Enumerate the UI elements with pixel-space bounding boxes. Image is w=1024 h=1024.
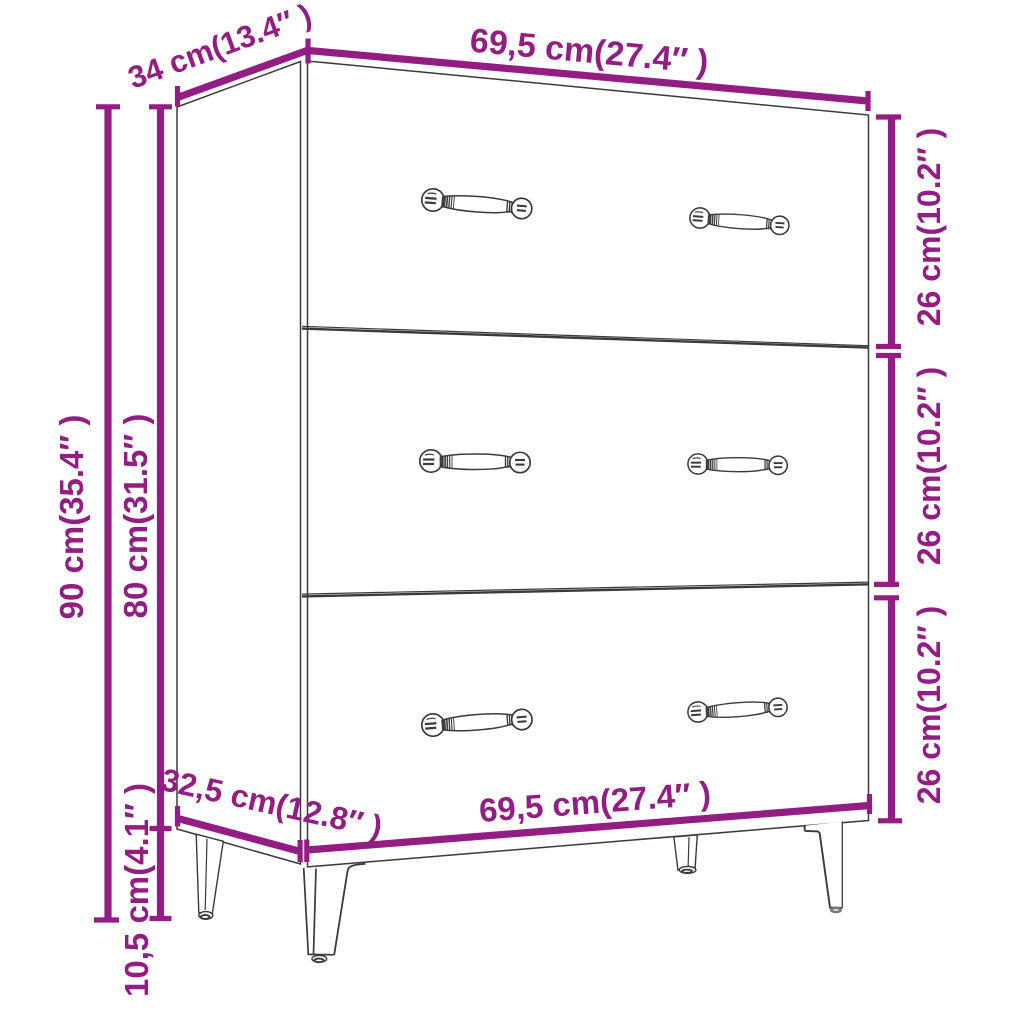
svg-text:10,5 cm(4.1″ ): 10,5 cm(4.1″ ) — [118, 783, 155, 997]
svg-text:90 cm(35.4″ ): 90 cm(35.4″ ) — [53, 415, 90, 620]
svg-text:26 cm(10.2″ ): 26 cm(10.2″ ) — [911, 606, 947, 805]
svg-text:80 cm(31.5″ ): 80 cm(31.5″ ) — [117, 414, 154, 619]
svg-text:26 cm(10.2″ ): 26 cm(10.2″ ) — [911, 367, 947, 566]
svg-text:26 cm(10.2″ ): 26 cm(10.2″ ) — [911, 128, 947, 327]
